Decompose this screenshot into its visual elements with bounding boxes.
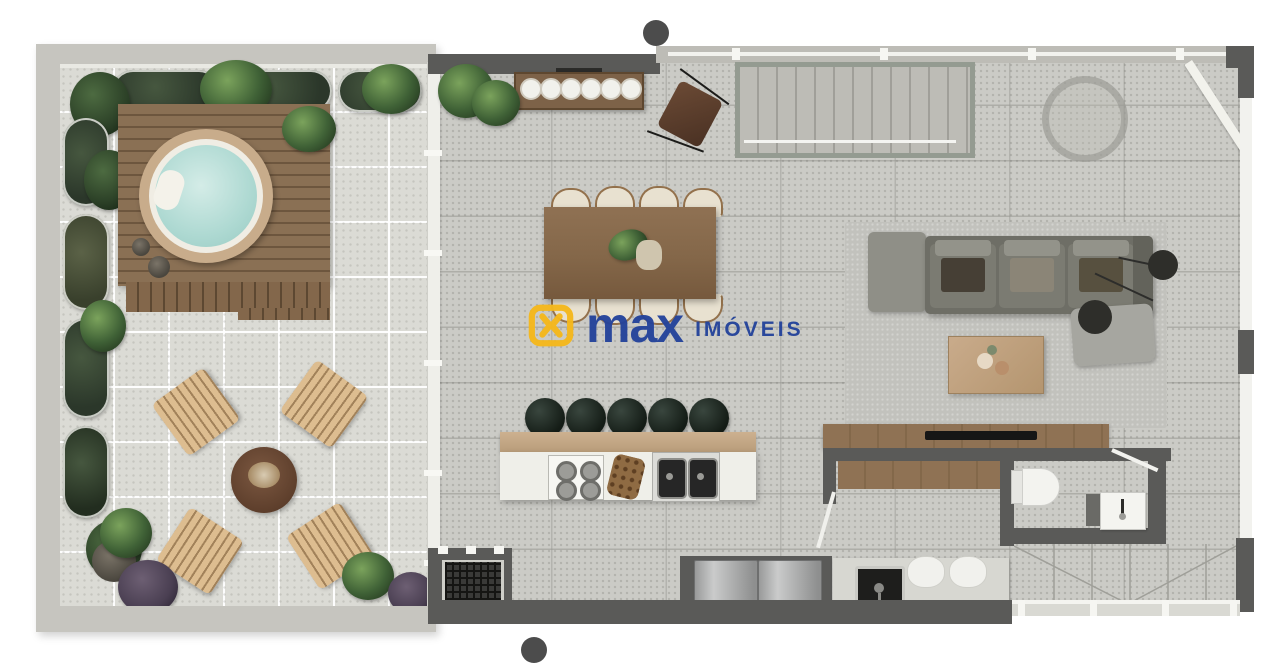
stair-handrail <box>744 140 956 143</box>
rail-post <box>466 546 476 554</box>
interior-bottom-wall <box>428 600 1012 624</box>
plant <box>100 508 152 558</box>
burner <box>580 461 601 482</box>
staircase-top <box>735 62 975 158</box>
right-window <box>1240 374 1252 538</box>
floor-plan-canvas: max IMÓVEIS <box>0 0 1280 672</box>
toilet <box>1022 468 1060 506</box>
section-marker-bottom <box>521 637 547 663</box>
plate <box>540 78 562 100</box>
top-handrail <box>668 52 1244 56</box>
max-monogram-icon <box>528 301 574 349</box>
rail-post <box>880 48 888 60</box>
plate <box>580 78 602 100</box>
island-bar-top <box>500 432 756 452</box>
planter <box>63 214 109 310</box>
rail-post <box>1162 600 1169 616</box>
rail-post <box>1018 600 1025 616</box>
double-sink <box>652 452 720 502</box>
cooktop <box>548 455 604 500</box>
burner <box>556 480 577 501</box>
drain <box>666 473 673 480</box>
table-decor <box>995 361 1009 375</box>
plant <box>80 300 126 352</box>
right-wall-segment <box>1238 62 1254 98</box>
window-mullion <box>424 150 442 156</box>
table-decor <box>977 353 993 369</box>
deck-lantern <box>148 256 170 278</box>
deck-lantern <box>132 238 150 256</box>
lower-cabinet <box>838 461 1002 489</box>
watermark-brand: max <box>586 300 683 350</box>
sofa-armrest <box>1133 236 1153 314</box>
linear-fireplace <box>925 431 1037 440</box>
planter <box>63 426 109 518</box>
drain <box>697 473 704 480</box>
burner <box>580 480 601 501</box>
sofa-pillow <box>941 258 985 292</box>
plate <box>520 78 542 100</box>
watermark-logo: max IMÓVEIS <box>528 300 804 350</box>
rail-post <box>1028 48 1036 60</box>
staircase-bottom <box>1014 544 1236 604</box>
bathroom-sink <box>1100 492 1146 530</box>
watermark-suffix: IMÓVEIS <box>695 318 804 342</box>
drain <box>1119 513 1126 520</box>
terrace-bottom-wall <box>36 606 436 632</box>
plant <box>282 106 336 152</box>
bathroom-shelf <box>1086 494 1100 526</box>
sofa-backrest <box>1073 240 1129 256</box>
burner <box>556 461 577 482</box>
bottom-rail <box>1012 600 1240 604</box>
sofa-backrest <box>935 240 991 256</box>
table-centerpiece <box>636 240 662 270</box>
floor-lamp-head <box>1078 300 1112 334</box>
fire-pit-decor <box>248 462 280 488</box>
floor-lamp-head <box>1148 250 1178 280</box>
rail-post <box>1176 48 1184 60</box>
laundry-basin <box>949 556 987 588</box>
laundry-basin <box>907 556 945 588</box>
window-mullion <box>424 470 442 476</box>
rail-post <box>494 546 504 554</box>
bathroom-wall <box>1000 528 1166 544</box>
rail-post <box>1230 600 1237 616</box>
plant <box>362 64 420 114</box>
rail-post <box>1090 600 1097 616</box>
plate <box>600 78 622 100</box>
rail-post <box>732 48 740 60</box>
rail-post <box>438 546 448 554</box>
sofa-pillow <box>1010 258 1054 292</box>
window-mullion <box>424 250 442 256</box>
round-floor-feature <box>1042 76 1128 162</box>
plant <box>342 552 394 600</box>
sofa-backrest <box>1004 240 1060 256</box>
plate <box>620 78 642 100</box>
bottom-window-wall <box>1012 602 1240 616</box>
table-decor <box>987 345 997 355</box>
deck-step <box>238 308 330 320</box>
sofa-chaise <box>868 232 926 312</box>
section-marker-top <box>643 20 669 46</box>
right-window <box>1240 98 1252 330</box>
faucet <box>874 583 884 593</box>
glass-wall-divider <box>427 62 440 606</box>
plant <box>472 80 520 126</box>
coffee-table <box>948 336 1044 394</box>
window-mullion <box>424 360 442 366</box>
sofa <box>925 236 1153 314</box>
grill-grate <box>445 562 501 600</box>
plate <box>560 78 582 100</box>
right-wall-segment <box>1238 330 1254 374</box>
bathroom-wall <box>1148 448 1166 540</box>
